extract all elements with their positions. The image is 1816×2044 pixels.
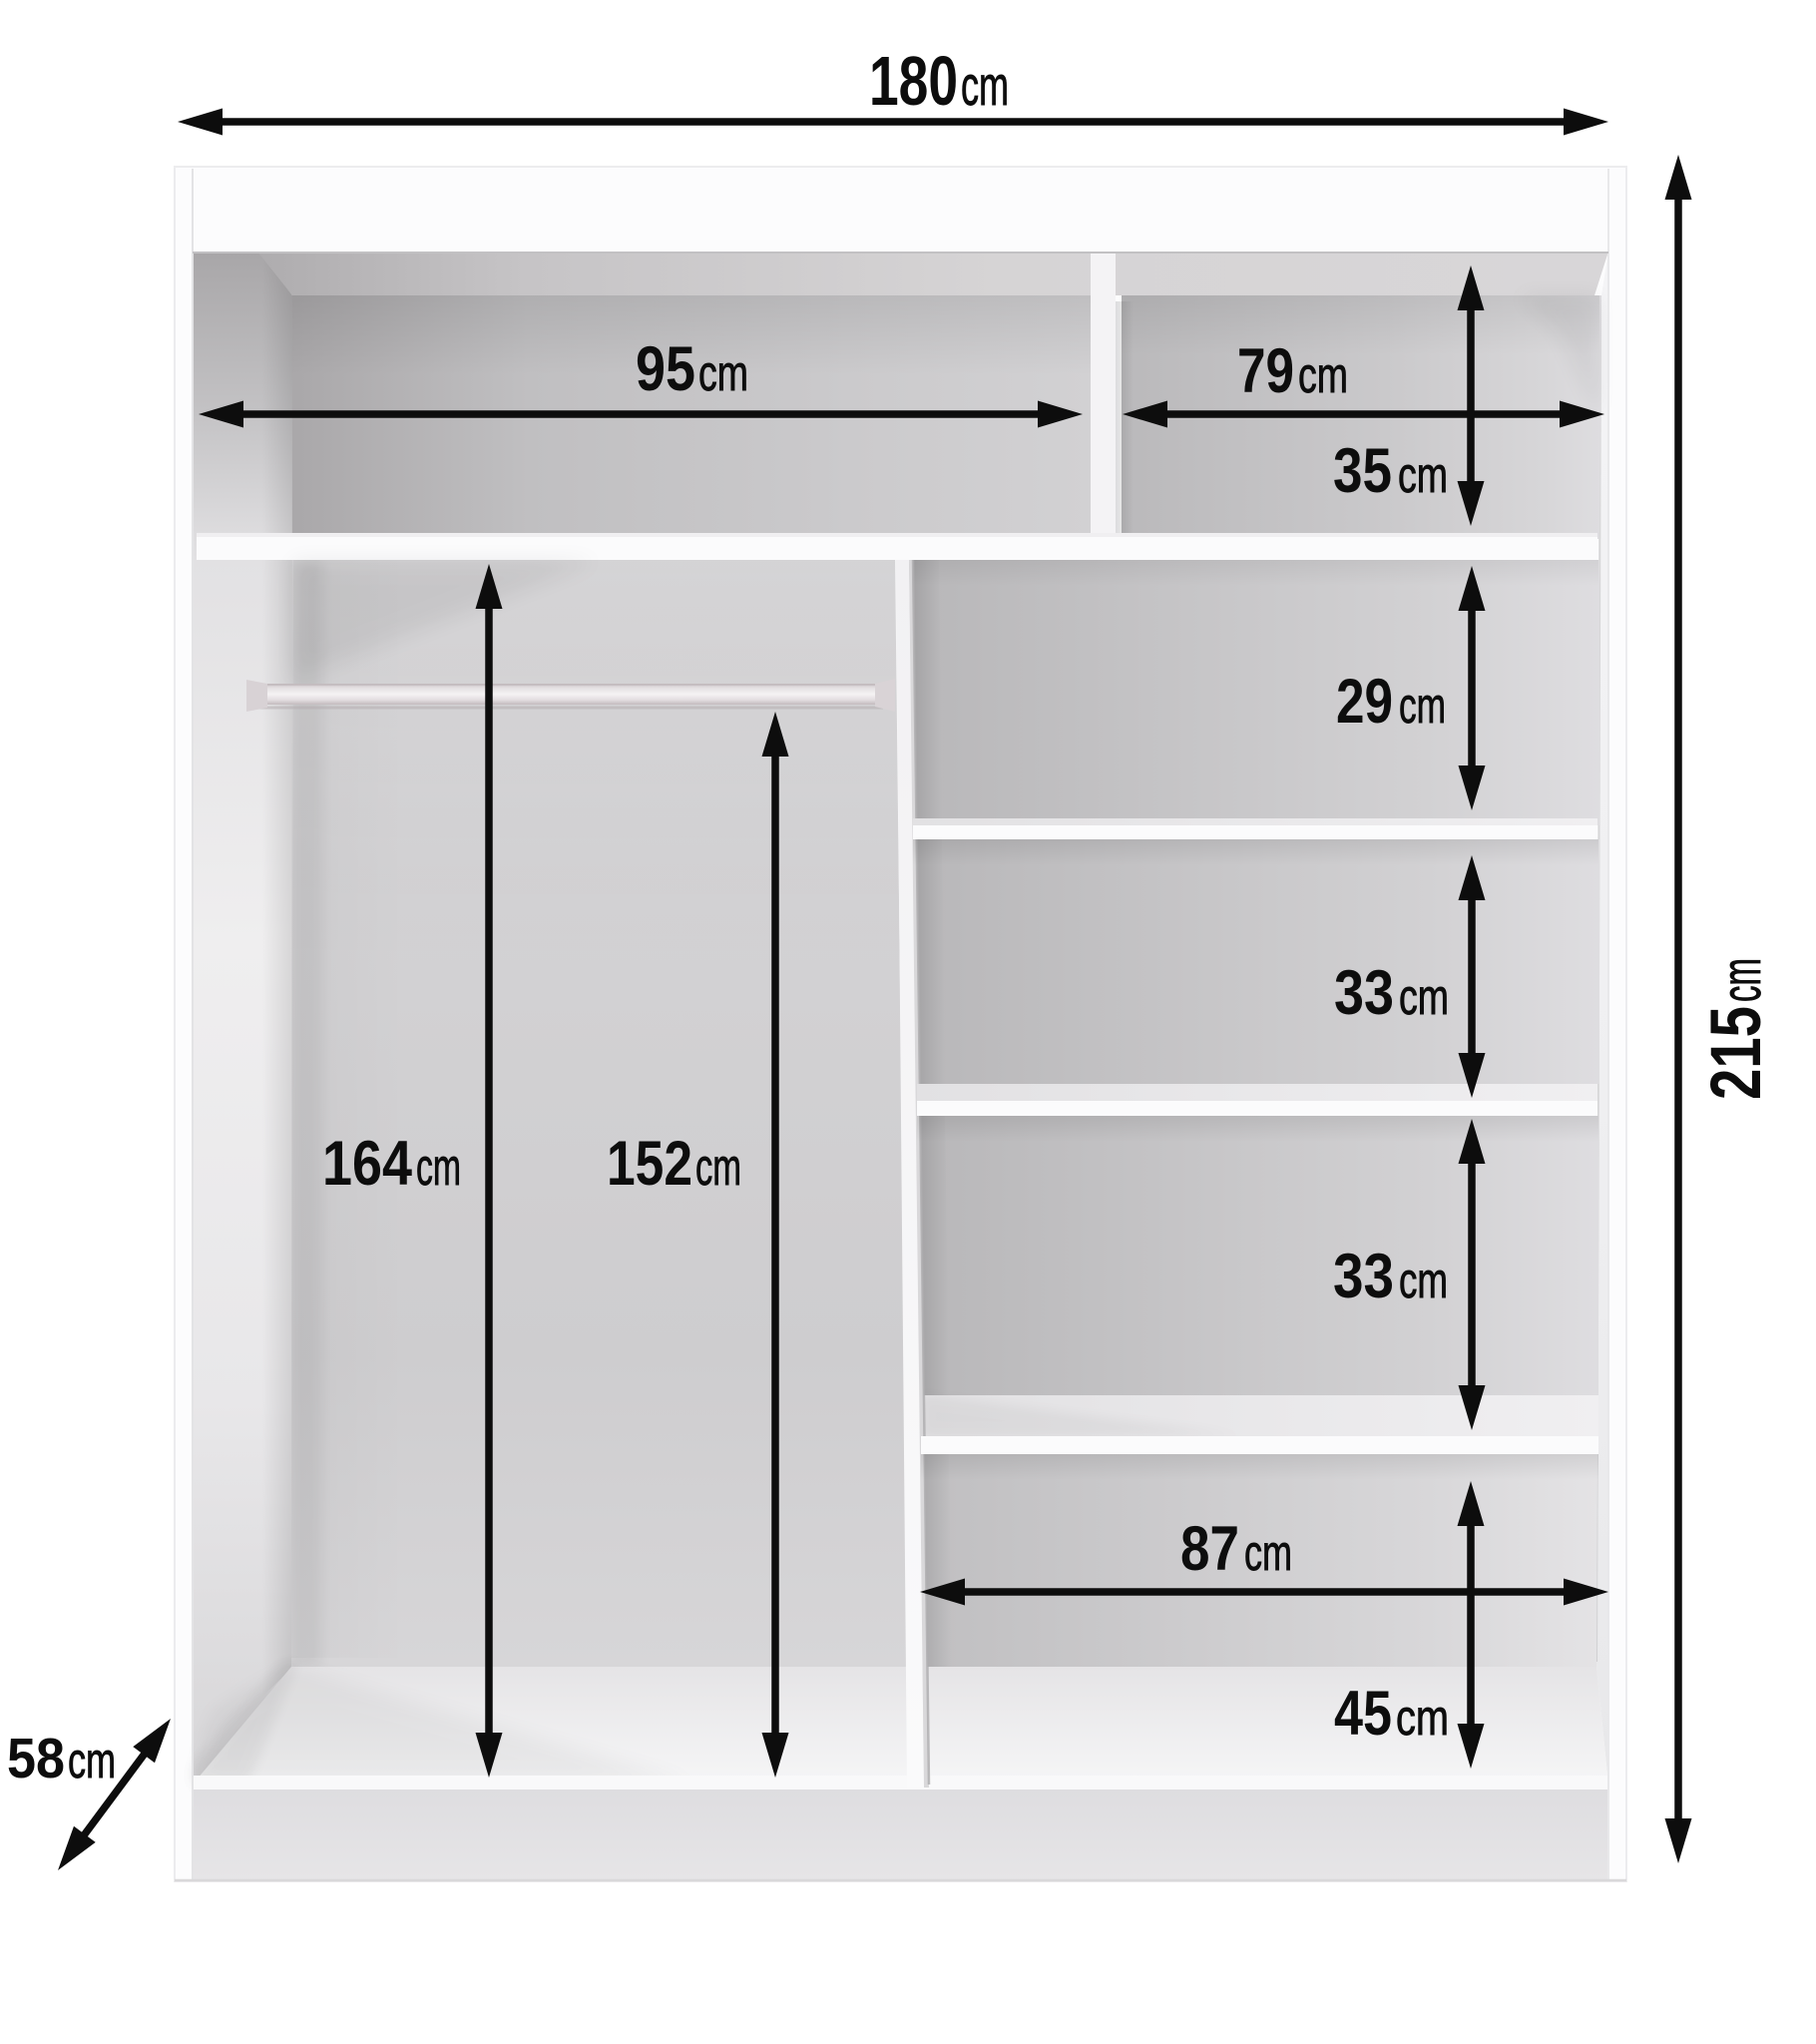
svg-text:58: 58 xyxy=(7,1727,65,1790)
svg-text:cm: cm xyxy=(698,345,748,401)
svg-text:cm: cm xyxy=(695,1139,741,1197)
svg-text:152: 152 xyxy=(607,1129,692,1199)
svg-text:cm: cm xyxy=(1398,447,1448,503)
svg-text:35: 35 xyxy=(1333,436,1392,506)
svg-text:215: 215 xyxy=(1697,1006,1776,1100)
svg-text:164: 164 xyxy=(322,1129,412,1199)
svg-text:29: 29 xyxy=(1336,667,1393,737)
svg-text:cm: cm xyxy=(1298,347,1348,403)
svg-text:95: 95 xyxy=(636,334,695,404)
svg-text:cm: cm xyxy=(68,1733,116,1788)
svg-text:180: 180 xyxy=(869,42,958,120)
svg-text:cm: cm xyxy=(1399,969,1449,1025)
svg-text:cm: cm xyxy=(1399,678,1446,734)
svg-text:cm: cm xyxy=(1396,1690,1449,1746)
svg-text:45: 45 xyxy=(1334,1679,1392,1749)
svg-text:87: 87 xyxy=(1180,1514,1239,1584)
svg-text:33: 33 xyxy=(1334,958,1394,1028)
svg-text:cm: cm xyxy=(416,1139,461,1197)
svg-text:cm: cm xyxy=(961,54,1009,117)
svg-text:33: 33 xyxy=(1333,1242,1394,1311)
svg-text:79: 79 xyxy=(1237,336,1294,406)
svg-text:cm: cm xyxy=(1244,1525,1292,1581)
svg-text:cm: cm xyxy=(1399,1253,1448,1308)
svg-text:cm: cm xyxy=(1709,958,1772,1002)
